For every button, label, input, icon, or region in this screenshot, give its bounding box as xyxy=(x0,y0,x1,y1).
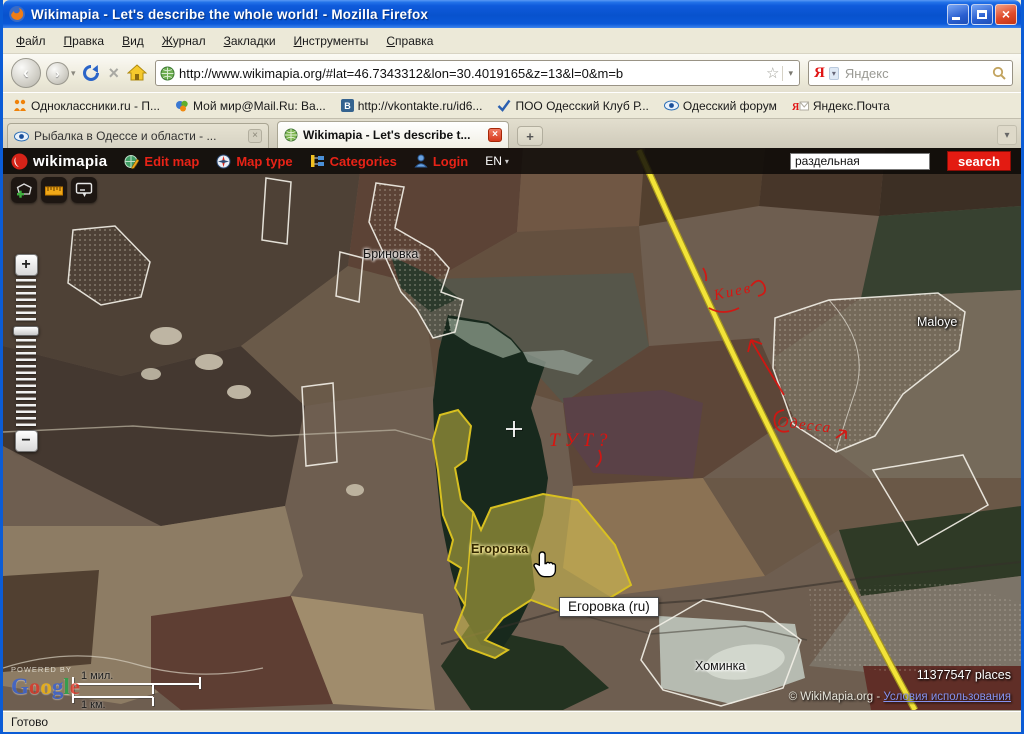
bookmark-odessa-forum[interactable]: Одесский форум xyxy=(664,99,777,113)
site-favicon-globe xyxy=(160,66,175,81)
tab-favicon-globe xyxy=(284,128,298,142)
wikimapia-header: wikimapia Edit map Map type xyxy=(3,148,1021,174)
language-label: EN xyxy=(485,154,502,168)
zoom-scale-ticks-lower[interactable] xyxy=(16,339,36,427)
wikimapia-search-input[interactable] xyxy=(790,153,930,170)
menu-file[interactable]: Файл xyxy=(7,30,55,52)
menu-edit[interactable]: Правка xyxy=(55,30,114,52)
map-type-icon xyxy=(216,154,231,169)
language-selector[interactable]: EN ▾ xyxy=(485,154,509,168)
categories-label: Categories xyxy=(330,154,397,169)
bookmark-star-icon[interactable]: ☆ xyxy=(763,64,782,82)
bookmark-label: Мой мир@Mail.Ru: Ва... xyxy=(193,99,326,113)
forward-button[interactable]: › xyxy=(46,62,69,85)
engine-dropdown-icon[interactable]: ▾ xyxy=(829,67,839,80)
satellite-map[interactable]: Киев ТУТ? Одесса xyxy=(3,148,1021,710)
google-letter: o xyxy=(40,674,52,699)
window-title: Wikimapia - Let's describe the whole wor… xyxy=(31,7,947,22)
bookmark-label: ПОО Одесский Клуб Р... xyxy=(515,99,648,113)
google-attribution: POWERED BY Google xyxy=(11,666,80,698)
label-brinovka: Бриновка xyxy=(363,247,418,261)
eye-icon xyxy=(664,100,679,111)
menu-history[interactable]: Журнал xyxy=(153,30,215,52)
terms-of-use-link[interactable]: Условия использования xyxy=(883,691,1011,703)
ruler-icon xyxy=(44,182,64,198)
bookmark-vkontakte[interactable]: B http://vkontakte.ru/id6... xyxy=(341,99,483,113)
zoom-scale-ticks-upper[interactable] xyxy=(16,279,36,323)
new-tab-button[interactable]: + xyxy=(517,126,543,146)
maximize-button[interactable] xyxy=(971,4,993,25)
comments-button[interactable] xyxy=(71,177,97,203)
powered-by-text: POWERED BY xyxy=(11,666,80,674)
odnoklassniki-icon xyxy=(13,99,27,112)
wikimapia-logo-icon xyxy=(11,153,28,170)
back-button[interactable]: ‹ xyxy=(11,58,41,88)
tab-favicon-eye xyxy=(14,131,29,142)
status-bar: Готово xyxy=(3,710,1021,732)
bookmark-moimir[interactable]: Мой мир@Mail.Ru: Ва... xyxy=(175,99,326,113)
zoom-slider-handle[interactable] xyxy=(13,326,39,336)
google-logo: Google xyxy=(11,675,80,698)
magnifier-icon[interactable] xyxy=(992,66,1007,81)
status-text: Готово xyxy=(11,715,48,729)
close-button[interactable]: × xyxy=(995,4,1017,25)
navigation-toolbar: ‹ › ▾ × ☆ ▾ Я ▾ xyxy=(3,54,1021,92)
zoom-out-button[interactable]: − xyxy=(15,430,38,452)
edit-map-label: Edit map xyxy=(144,154,199,169)
add-place-icon xyxy=(15,182,33,199)
list-all-tabs-button[interactable]: ▾ xyxy=(997,125,1017,145)
map-type-label: Map type xyxy=(236,154,292,169)
login-user-icon xyxy=(414,154,428,168)
tab-fishing-odessa[interactable]: Рыбалка в Одессе и области - ... × xyxy=(7,123,269,148)
edit-map-icon xyxy=(124,154,139,169)
google-letter: e xyxy=(70,674,80,699)
measure-ruler-button[interactable] xyxy=(41,177,67,203)
bookmark-odnoklassniki[interactable]: Одноклассники.ru - П... xyxy=(13,99,160,113)
label-egorovka: Егоровка xyxy=(471,542,528,556)
tab-label: Wikimapia - Let's describe t... xyxy=(303,128,483,142)
language-caret-icon: ▾ xyxy=(505,157,509,166)
map-type-link[interactable]: Map type xyxy=(216,154,292,169)
firefox-icon xyxy=(8,5,26,23)
url-bar[interactable]: ☆ ▾ xyxy=(155,60,800,86)
url-dropdown-icon[interactable]: ▾ xyxy=(782,66,795,81)
copyright-text: © WikiMapia.org - xyxy=(789,691,884,703)
maximize-icon xyxy=(977,10,987,19)
login-link[interactable]: Login xyxy=(414,154,468,169)
login-label: Login xyxy=(433,154,468,169)
bookmark-odessa-club[interactable]: ПОО Одесский Клуб Р... xyxy=(497,99,648,113)
menu-bookmarks[interactable]: Закладки xyxy=(215,30,285,52)
wikimapia-search-button[interactable]: search xyxy=(947,151,1011,171)
tab-bar: Рыбалка в Одессе и области - ... × Wikim… xyxy=(3,118,1021,148)
tab-wikimapia[interactable]: Wikimapia - Let's describe t... × xyxy=(277,121,509,148)
home-button[interactable] xyxy=(127,64,147,82)
bookmark-label: Одноклассники.ru - П... xyxy=(31,99,160,113)
label-maloye: Maloye xyxy=(917,315,957,329)
google-letter: G xyxy=(11,674,29,699)
tab-label: Рыбалка в Одессе и области - ... xyxy=(34,129,243,143)
web-search-input[interactable] xyxy=(843,65,988,82)
search-engine-bar[interactable]: Я ▾ xyxy=(808,60,1013,86)
places-count: 11377547 places xyxy=(917,668,1011,682)
stop-button[interactable]: × xyxy=(106,63,123,84)
add-place-button[interactable] xyxy=(11,177,37,203)
wikimapia-copyright: © WikiMapia.org - Условия использования xyxy=(789,691,1011,703)
bookmark-label: Яндекс.Почта xyxy=(813,99,890,113)
categories-icon xyxy=(310,154,325,168)
google-letter: o xyxy=(29,674,41,699)
home-icon xyxy=(127,64,147,82)
bookmark-label: Одесский форум xyxy=(683,99,777,113)
title-bar[interactable]: Wikimapia - Let's describe the whole wor… xyxy=(3,0,1021,28)
vkontakte-icon: B xyxy=(341,99,354,112)
url-input[interactable] xyxy=(175,66,763,81)
categories-link[interactable]: Categories xyxy=(310,154,397,169)
bookmark-label: http://vkontakte.ru/id6... xyxy=(358,99,483,113)
reload-icon xyxy=(81,63,101,83)
comment-bubble-icon xyxy=(74,181,94,199)
map-tools xyxy=(11,177,97,203)
page-content: Киев ТУТ? Одесса xyxy=(3,148,1021,710)
bookmarks-toolbar: Одноклассники.ru - П... Мой мир@Mail.Ru:… xyxy=(3,92,1021,118)
minimize-button[interactable] xyxy=(947,4,969,25)
place-tooltip: Егоровка (ru) xyxy=(559,597,659,617)
edit-map-link[interactable]: Edit map xyxy=(124,154,199,169)
moimir-icon xyxy=(175,99,189,113)
tab-close-button[interactable]: × xyxy=(248,129,262,143)
history-dropdown-icon[interactable]: ▾ xyxy=(71,68,76,79)
menu-help[interactable]: Справка xyxy=(377,30,442,52)
yandex-mail-icon: Я xyxy=(792,100,809,112)
reload-button[interactable] xyxy=(81,63,101,83)
scale-km-label: 1 км. xyxy=(81,699,106,710)
menu-tools[interactable]: Инструменты xyxy=(285,30,378,52)
label-khominka: Хоминка xyxy=(695,659,745,673)
zoom-in-button[interactable]: + xyxy=(15,254,38,276)
menu-bar: Файл Правка Вид Журнал Закладки Инструме… xyxy=(3,28,1021,54)
firefox-window: Wikimapia - Let's describe the whole wor… xyxy=(0,0,1024,734)
bookmark-yandex-mail[interactable]: Я Яндекс.Почта xyxy=(792,99,890,113)
tab-close-button[interactable]: × xyxy=(488,128,502,142)
scale-miles-label: 1 мил. xyxy=(81,670,113,682)
checkmark-icon xyxy=(497,99,511,112)
wikimapia-logo[interactable]: wikimapia xyxy=(11,153,107,170)
minimize-icon xyxy=(952,17,960,20)
menu-view[interactable]: Вид xyxy=(113,30,153,52)
annotation-tut: ТУТ? xyxy=(549,430,612,451)
svg-text:Я: Я xyxy=(792,102,800,112)
svg-text:B: B xyxy=(344,101,351,111)
wikimapia-logo-text: wikimapia xyxy=(33,153,107,170)
yandex-icon: Я xyxy=(814,65,825,82)
google-letter: g xyxy=(52,674,64,699)
zoom-control: + − xyxy=(13,254,39,452)
